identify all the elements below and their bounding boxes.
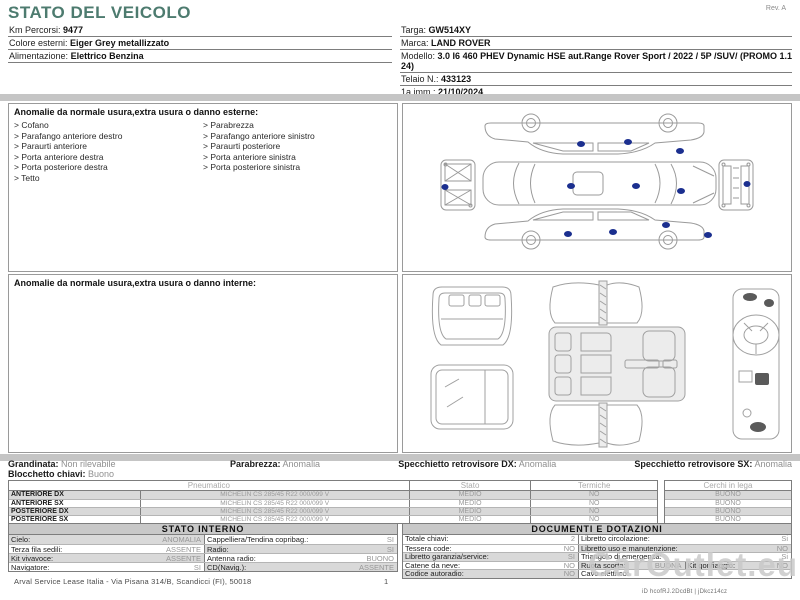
kv-value: NO <box>564 570 578 578</box>
tyre-row: POSTERIORE SX MICHELIN CS 285/45 R22 000… <box>9 515 657 523</box>
kv-label: Tessera code: <box>403 545 452 553</box>
tyre-row: ANTERIORE DX MICHELIN CS 285/45 R22 000/… <box>9 491 657 499</box>
tyre-stato: MEDIO <box>410 516 532 523</box>
info-label: Marca: <box>401 38 429 48</box>
damage-item: Porta posteriore sinistra <box>203 162 392 173</box>
kv-value: NO <box>564 562 578 570</box>
info-label: Targa: <box>401 25 426 35</box>
kv-value: ASSENTE <box>166 554 204 562</box>
stato-interno-row: Kit vivavoce:ASSENTE Antenna radio:BUONO <box>9 553 397 562</box>
tyre-termiche: NO <box>531 516 657 523</box>
tyre-termiche: NO <box>531 508 657 515</box>
page-number: 1 <box>384 577 388 586</box>
kv-value: BUONO <box>366 554 397 562</box>
kv-label: Codice autoradio: <box>403 570 464 578</box>
condition-summary-left: Grandinata: Non rilevabile Blocchetto ch… <box>8 460 116 479</box>
kv-label: Cappelliera/Tendina copribag.: <box>205 535 308 544</box>
caroutlet-watermark: CarOutlet.eu <box>588 546 798 584</box>
document-id-text: iD hcofRJ.2DcdBt | jDkcz14cz <box>642 589 727 595</box>
kv-label: Totale chiavi: <box>403 535 448 544</box>
page-title: STATO DEL VEICOLO <box>8 3 191 23</box>
damage-item: Porta anteriore destra <box>14 152 203 163</box>
kv-value: ANOMALIA <box>162 535 204 544</box>
rims-value: BUONO <box>665 516 791 523</box>
tyre-position: POSTERIORE DX <box>9 508 141 515</box>
tyre-row: POSTERIORE DX MICHELIN CS 285/45 R22 000… <box>9 507 657 515</box>
condition-value: Anomalia <box>519 459 557 469</box>
kv-label: Kit vivavoce: <box>9 554 53 562</box>
damage-item: Parafango anteriore sinistro <box>203 131 392 142</box>
kv-value: SI <box>387 535 397 544</box>
tyre-position: POSTERIORE SX <box>9 516 141 523</box>
info-label: Modello: <box>401 51 435 61</box>
rims-value: BUONO <box>665 500 791 507</box>
damage-item: Paraurti anteriore <box>14 141 203 152</box>
tyre-termiche: NO <box>531 491 657 499</box>
rims-value: BUONO <box>665 508 791 515</box>
info-value: 9477 <box>63 25 83 35</box>
tyre-stato: MEDIO <box>410 508 532 515</box>
condition-value: Anomalia <box>754 459 792 469</box>
car-exterior-diagram-icon <box>403 104 791 271</box>
kv-value: ASSENTE <box>166 545 204 553</box>
tyre-stato: MEDIO <box>410 500 532 507</box>
condition-specchietto-sx: Specchietto retrovisore SX: Anomalia <box>634 460 792 470</box>
internal-damage-panel: Anomalie da normale usura,extra usura o … <box>8 274 398 453</box>
kv-label: Antenna radio: <box>205 554 256 562</box>
vehicle-info-left: Km Percorsi: 9477 Colore esterni: Eiger … <box>8 24 392 63</box>
documenti-title: DOCUMENTI E DOTAZIONI <box>403 524 791 535</box>
condition-label: Specchietto retrovisore DX: <box>398 459 517 469</box>
kv-value: SI <box>387 545 397 553</box>
info-row-targa: Targa: GW514XY <box>400 24 792 37</box>
rims-header: Cerchi in lega <box>665 481 791 491</box>
kv-label: Radio: <box>205 545 229 553</box>
info-label: Telaio N.: <box>401 74 439 84</box>
external-damage-list: Cofano Parafango anteriore destro Paraur… <box>9 119 397 184</box>
condition-value: Non rilevabile <box>61 459 116 469</box>
info-row-colore: Colore esterni: Eiger Grey metallizzato <box>8 37 392 50</box>
condition-label: Grandinata: <box>8 459 59 469</box>
damage-item: Paraurti posteriore <box>203 141 392 152</box>
info-value: GW514XY <box>429 25 472 35</box>
tyre-termiche: NO <box>531 500 657 507</box>
tyre-header-pneumatico: Pneumatico <box>9 481 410 491</box>
info-value: 3.0 I6 460 PHEV Dynamic HSE aut.Range Ro… <box>401 51 792 71</box>
kv-value: ASSENTE <box>359 563 397 571</box>
tyre-spec: MICHELIN CS 285/45 R22 000/099 V <box>141 516 410 523</box>
tyre-header-termiche: Termiche <box>531 481 657 491</box>
rims-row: BUONO <box>665 499 791 507</box>
kv-value: SI <box>568 553 578 561</box>
condition-parabrezza: Parabrezza: Anomalia <box>230 460 320 470</box>
condition-blocchetto: Blocchetto chiavi: Buono <box>8 470 116 480</box>
info-row-telaio: Telaio N.: 433123 <box>400 73 792 86</box>
kv-label: Navigatore: <box>9 563 49 571</box>
kv-label: CD(Navig.): <box>205 563 246 571</box>
damage-item: Tetto <box>14 173 203 184</box>
condition-label: Parabrezza: <box>230 459 281 469</box>
internal-damage-title: Anomalie da normale usura,extra usura o … <box>9 275 397 290</box>
tyre-stato: MEDIO <box>410 491 532 499</box>
footer-company-address: Arval Service Lease Italia - Via Pisana … <box>14 577 251 586</box>
rims-row: BUONO <box>665 515 791 523</box>
info-row-marca: Marca: LAND ROVER <box>400 37 792 50</box>
car-interior-diagram-icon <box>403 275 791 452</box>
kv-label: Catene da neve: <box>403 562 460 570</box>
info-row-km: Km Percorsi: 9477 <box>8 24 392 37</box>
info-label: Colore esterni: <box>9 38 68 48</box>
interior-diagram-panel <box>402 274 792 453</box>
damage-item: Parabrezza <box>203 120 392 131</box>
tyre-row: ANTERIORE SX MICHELIN CS 285/45 R22 000/… <box>9 499 657 507</box>
revision-label: Rev. A <box>766 5 786 12</box>
damage-item: Porta posteriore destra <box>14 162 203 173</box>
info-label: Alimentazione: <box>9 51 68 61</box>
kv-label: Cielo: <box>9 535 30 544</box>
stato-interno-row: Cielo:ANOMALIA Cappelliera/Tendina copri… <box>9 535 397 544</box>
kv-label: Terza fila sedili: <box>9 545 62 553</box>
stato-interno-row: Terza fila sedili:ASSENTE Radio:SI <box>9 544 397 553</box>
kv-value: SI <box>194 563 204 571</box>
info-value: 433123 <box>441 74 471 84</box>
info-value: LAND ROVER <box>431 38 491 48</box>
rims-row: BUONO <box>665 491 791 499</box>
tyre-position: ANTERIORE DX <box>9 491 141 499</box>
kv-label: Libretto garanzia/service: <box>403 553 489 561</box>
damage-item: Porta anteriore sinistra <box>203 152 392 163</box>
damage-item: Cofano <box>14 120 203 131</box>
rims-table: Cerchi in lega BUONO BUONO BUONO BUONO <box>664 480 792 524</box>
vehicle-info-right: Targa: GW514XY Marca: LAND ROVER Modello… <box>400 24 792 99</box>
info-row-modello: Modello: 3.0 I6 460 PHEV Dynamic HSE aut… <box>400 50 792 73</box>
info-value: Elettrico Benzina <box>71 51 144 61</box>
info-value: Eiger Grey metallizzato <box>70 38 169 48</box>
external-damage-title: Anomalie da normale usura,extra usura o … <box>9 104 397 119</box>
condition-value: Anomalia <box>283 459 321 469</box>
tyre-spec: MICHELIN CS 285/45 R22 000/099 V <box>141 491 410 499</box>
info-label: Km Percorsi: <box>9 25 61 35</box>
info-row-alimentazione: Alimentazione: Elettrico Benzina <box>8 50 392 63</box>
tyre-spec: MICHELIN CS 285/45 R22 000/099 V <box>141 500 410 507</box>
damage-item: Parafango anteriore destro <box>14 131 203 142</box>
rims-value: BUONO <box>665 491 791 499</box>
condition-label: Specchietto retrovisore SX: <box>634 459 752 469</box>
tyre-position: ANTERIORE SX <box>9 500 141 507</box>
kv-value: NO <box>564 545 578 553</box>
condition-summary-right: Parabrezza: Anomalia Specchietto retrovi… <box>230 460 792 470</box>
exterior-diagram-panel <box>402 103 792 272</box>
external-damage-panel: Anomalie da normale usura,extra usura o … <box>8 103 398 272</box>
stato-interno-title: STATO INTERNO <box>9 524 397 535</box>
kv-value: 2 <box>571 535 578 544</box>
condition-label: Blocchetto chiavi: <box>8 469 86 479</box>
condition-specchietto-dx: Specchietto retrovisore DX: Anomalia <box>398 460 556 470</box>
stato-interno-table: STATO INTERNO Cielo:ANOMALIA Cappelliera… <box>8 523 398 572</box>
separator-bar <box>0 94 800 101</box>
tyre-header-stato: Stato <box>410 481 532 491</box>
stato-interno-row: Navigatore:SI CD(Navig.):ASSENTE <box>9 562 397 571</box>
documenti-row: Totale chiavi:2 Libretto circolazione:Si <box>403 535 791 544</box>
condition-value: Buono <box>88 469 114 479</box>
kv-value: Si <box>781 535 791 544</box>
kv-label: Libretto circolazione: <box>579 535 650 544</box>
tyre-spec: MICHELIN CS 285/45 R22 000/099 V <box>141 508 410 515</box>
tyre-table: Pneumatico Stato Termiche ANTERIORE DX M… <box>8 480 658 524</box>
rims-row: BUONO <box>665 507 791 515</box>
